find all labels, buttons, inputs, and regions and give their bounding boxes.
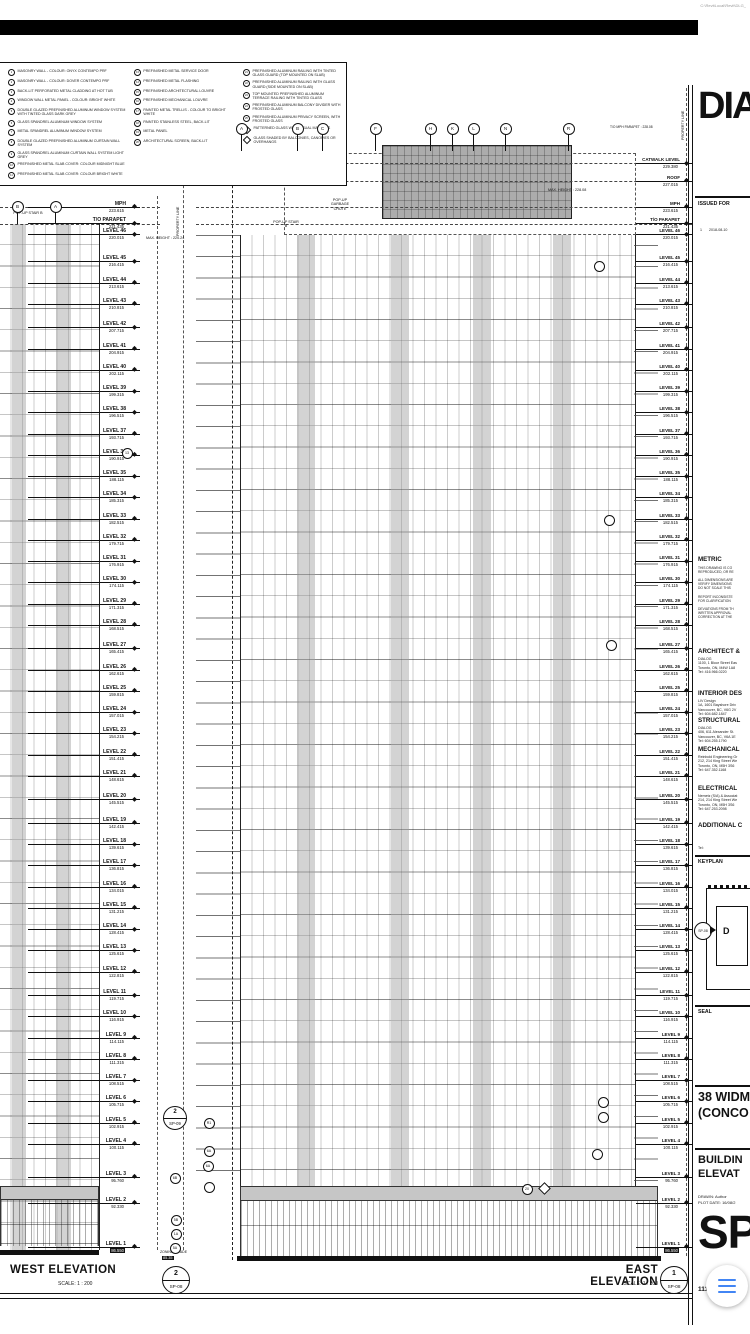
level-marker: LEVEL 25159.815◆ [636, 685, 692, 698]
level-marker: LEVEL 37193.715◆ [636, 428, 692, 441]
legend-item: 13PREFINISHED METAL SERVICE DOOR [134, 69, 236, 76]
popup-garbage-chute-label: POP-UP GARBAGE CHUTE [325, 198, 355, 211]
level-marker: LEVEL 40202.115◆ [636, 364, 692, 377]
metric-notes: THIS DRAWING IS COREPRODUCED, OR REALL D… [698, 566, 750, 619]
elevation-target-icon: ◆ [132, 409, 137, 416]
level-marker: LEVEL 23154.215◆ [28, 727, 140, 740]
keynote-circle-icon: 3 [8, 89, 15, 96]
level-marker: LEVEL 16134.015◆ [28, 881, 140, 894]
level-marker: LEVEL 9114.115◆ [636, 1032, 692, 1045]
elevation-target-icon: ◆ [132, 345, 137, 352]
revision-date: 2018-08-10 [709, 228, 750, 232]
elevation-target-icon: ◆ [132, 947, 137, 954]
elevation-target-icon: ◆ [132, 841, 137, 848]
elevation-target-icon: ◆ [132, 300, 137, 307]
keynote-circle: 6A [203, 1161, 214, 1172]
elevation-target-icon: ◆ [132, 324, 137, 331]
keynote-circle-icon: 5 [8, 108, 15, 115]
sheet-title-line1: BUILDIN [698, 1153, 750, 1168]
elevation-target-icon: ◆ [132, 494, 137, 501]
keyplan-header: KEYPLAN [698, 859, 750, 865]
level-marker: LEVEL 15131.215◆ [28, 902, 140, 915]
level-marker: LEVEL 13125.615◆ [636, 944, 692, 957]
elevation-target-icon: ◆ [132, 709, 137, 716]
level-marker: LEVEL 292.330◆ [28, 1197, 140, 1210]
parapet-datum-line-east [196, 224, 692, 225]
elevation-target-icon: ◆ [132, 558, 137, 565]
legend-item: 22PREFINISHED ALUMINUM RAILING WITH GLAS… [243, 80, 342, 89]
hamburger-icon [718, 1279, 736, 1282]
level-marker: LEVEL 20145.515◆ [28, 793, 140, 806]
level-marker: LEVEL 31176.915◆ [28, 555, 140, 568]
elevation-target-icon: ◆ [132, 1199, 137, 1206]
legend-item: 25PREFINISHED ALUMINUM PRIVACY SCREEN, W… [243, 115, 342, 124]
level-marker: LEVEL 8111.315◆ [636, 1053, 692, 1066]
west-elevation-title: WEST ELEVATION [10, 1264, 116, 1276]
keynote-circle [606, 640, 617, 651]
level-marker: LEVEL 37193.715◆ [28, 428, 140, 441]
elevation-target-icon: ◆ [132, 687, 137, 694]
keynote-circle-icon: 10 [8, 162, 15, 169]
level-marker: LEVEL 36190.915◆ [636, 449, 692, 462]
level-marker: LEVEL 29171.315◆ [28, 598, 140, 611]
level-marker: LEVEL 17136.815◆ [636, 859, 692, 872]
hamburger-icon [718, 1285, 736, 1288]
property-line-east-left [232, 140, 233, 1260]
level-marker: LEVEL 24157.015◆ [636, 706, 692, 719]
level-marker: LEVEL 39199.315◆ [28, 385, 140, 398]
elevation-target-icon: ◆ [132, 772, 137, 779]
keynote-circle: 20 [522, 1184, 533, 1195]
level-marker: LEVEL 11119.715◆ [636, 989, 692, 1002]
legend-item: 20ARCHITECTURAL SCREEN, BACK-LIT [134, 139, 236, 146]
hamburger-icon [718, 1291, 736, 1294]
east-balcony-ticks-left [196, 235, 240, 1186]
level-marker: LEVEL 41204.915◆ [28, 343, 140, 356]
elevation-target-icon: ◆ [132, 515, 137, 522]
elevation-target-icon: ◆ [132, 1034, 137, 1041]
metric-header: METRIC [698, 556, 750, 563]
elevation-target-icon: ◆ [132, 751, 137, 758]
level-marker: LEVEL 292.330◆ [636, 1197, 692, 1210]
level-marker: LEVEL 32179.715◆ [636, 534, 692, 547]
elevation-target-icon: ◆ [132, 258, 137, 265]
level-marker: LEVEL 34185.315◆ [636, 491, 692, 504]
level-marker: CATWALK LEVEL229.380◆ [636, 157, 692, 170]
elevation-target-icon: ◆ [132, 819, 137, 826]
elevation-target-icon: ◆ [132, 1055, 137, 1062]
popup-stair-label-west: POP-UP STAIR B [5, 211, 51, 215]
level-marker: LEVEL 30174.115◆ [28, 576, 140, 589]
elevation-target-icon: ◆ [132, 796, 137, 803]
keynote-circle: 6A [204, 1146, 215, 1157]
keynote-circle-icon: 24 [243, 103, 250, 110]
divider [695, 855, 750, 857]
level-marker: LEVEL 395.760◆ [28, 1171, 140, 1184]
titleblock-border-outer [688, 85, 689, 1325]
elevation-target-icon: ◆ [132, 579, 137, 586]
structural-header: STRUCTURAL [698, 717, 750, 724]
keynote-circle-icon: 8 [8, 139, 15, 146]
grid-bubble: B [292, 123, 304, 135]
level-marker: LEVEL 39199.315◆ [636, 385, 692, 398]
level-marker: LEVEL 6105.715◆ [636, 1095, 692, 1108]
drawing-viewer-page: C:\RevitLocal\Revit\DLG_ 1MASONRY WALL -… [0, 0, 750, 1334]
titleblock: DIA ISSUED FOR 1 2018-08-10 METRIC THIS … [693, 36, 750, 1334]
grid-bubble: C [317, 123, 329, 135]
project-name-line1: 38 WIDM [698, 1090, 750, 1105]
keynote-circle-icon: 22 [243, 80, 250, 87]
level-marker: LEVEL 42207.715◆ [28, 321, 140, 334]
divider [695, 1085, 750, 1087]
keynote-circle [598, 1097, 609, 1108]
east-title-callout: 1 SP-08 [660, 1266, 688, 1294]
popup-stair-label-east: POP-UP STAIR B [272, 220, 300, 229]
grid-bubble: L [468, 123, 480, 135]
elevation-target-icon: ◆ [132, 883, 137, 890]
elevation-target-icon: ◆ [132, 473, 137, 480]
level-marker: LEVEL 8111.315◆ [28, 1053, 140, 1066]
level-marker: LEVEL 19142.415◆ [636, 817, 692, 830]
level-marker: LEVEL 186.550◆ [28, 1241, 140, 1254]
level-marker: LEVEL 26162.615◆ [28, 664, 140, 677]
grid-line-stem [452, 133, 453, 151]
level-marker: LEVEL 25159.815◆ [28, 685, 140, 698]
level-marker: LEVEL 35188.115◆ [28, 470, 140, 483]
keynote-circle-icon: 7 [8, 129, 15, 136]
legend-item: 21PREFINISHED ALUMINUM RAILING WITH TINT… [243, 69, 342, 78]
keynote-circle-icon: 6 [8, 120, 15, 127]
west-title-callout: 2 SP-08 [162, 1266, 190, 1294]
level-marker: LEVEL 30174.115◆ [636, 576, 692, 589]
keynote-circle-icon: 2 [8, 79, 15, 86]
architect-header: ARCHITECT & [698, 648, 750, 655]
plot-date: PLOT DATE: 16/08/2 [698, 1201, 750, 1205]
level-marker: LEVEL 7108.515◆ [28, 1074, 140, 1087]
legend-item: 23TOP MOUNTED PREFINISHED ALUMINUM TERRA… [243, 92, 342, 101]
west-elevation-scale: SCALE: 1 : 200 [58, 1281, 92, 1287]
keynote-circle-icon: 21 [243, 69, 250, 76]
level-marker: LEVEL 12122.815◆ [28, 966, 140, 979]
level-marker: LEVEL 43210.815◆ [636, 298, 692, 311]
level-marker: LEVEL 6105.715◆ [28, 1095, 140, 1108]
grid-line-stem [322, 133, 323, 151]
level-marker: LEVEL 45216.415◆ [636, 255, 692, 268]
level-marker: LEVEL 21148.615◆ [28, 770, 140, 783]
grid-line-stem [473, 133, 474, 151]
level-marker: LEVEL 33182.515◆ [636, 513, 692, 526]
level-marker: ROOF227.015◆ [636, 175, 692, 188]
level-marker: LEVEL 17136.815◆ [28, 859, 140, 872]
elevation-target-icon: ◆ [132, 621, 137, 628]
keynote-circle [604, 515, 615, 526]
grid-line-stem [430, 133, 431, 151]
keyplan-arrow-icon [710, 926, 716, 934]
legend-item: 18PAINTED STAINLESS STEEL, BACK-LIT [134, 120, 236, 127]
file-path-top: C:\RevitLocal\Revit\DLG_ [700, 3, 746, 8]
menu-fab-button[interactable] [706, 1265, 748, 1307]
level-marker: LEVEL 28168.515◆ [28, 619, 140, 632]
project-name-line2: (CONCO [698, 1106, 750, 1121]
level-marker: LEVEL 45216.415◆ [28, 255, 140, 268]
level-marker: LEVEL 18139.615◆ [28, 838, 140, 851]
keynote-circle [594, 261, 605, 272]
level-marker: LEVEL 11119.715◆ [28, 989, 140, 1002]
property-line-label: PROPERTY LINE [681, 92, 685, 140]
elevation-target-icon: ◆ [132, 388, 137, 395]
level-marker: LEVEL 28168.515◆ [636, 619, 692, 632]
elevation-target-icon: ◆ [132, 904, 137, 911]
grid-line-stem [505, 133, 506, 151]
property-line-label: PROPERTY LINE [176, 188, 180, 236]
level-marker: LEVEL 186.550◆ [636, 1241, 692, 1254]
level-marker: LEVEL 22151.415◆ [636, 749, 692, 762]
level-marker: LEVEL 9114.115◆ [28, 1032, 140, 1045]
legend-item: 14PREFINISHED METAL FLASHING [134, 79, 236, 86]
interior-info: LIV Design1A, 1601 Bayshore Driv Vancouv… [698, 699, 750, 716]
elevation-target-icon: ◆ [132, 645, 137, 652]
west-level-markers: MPH223.615◆T/O PARAPET221.435◆LEVEL 4622… [28, 0, 140, 1334]
legend-column-2: 13PREFINISHED METAL SERVICE DOOR14PREFIN… [134, 69, 236, 182]
keynote-circle: 6B [170, 1173, 181, 1184]
level-marker: LEVEL 14128.415◆ [636, 923, 692, 936]
drawn-by: DRAWN: Author [698, 1195, 750, 1199]
elevation-target-icon: ◆ [132, 1098, 137, 1105]
level-marker: LEVEL 21148.615◆ [636, 770, 692, 783]
elevation-target-icon: ◆ [132, 1243, 137, 1250]
legend-item: 15PREFINISHED ARCHITECTURAL LOUVRE [134, 89, 236, 96]
level-marker: LEVEL 44213.615◆ [28, 277, 140, 290]
level-marker: LEVEL 31176.915◆ [636, 555, 692, 568]
keynote-circle-icon: 25 [243, 115, 250, 122]
level-marker: LEVEL 7108.515◆ [636, 1074, 692, 1087]
grid-bubble: K [447, 123, 459, 135]
level-marker: MPH223.615◆ [636, 201, 692, 214]
interior-header: INTERIOR DES [698, 690, 750, 697]
elevation-target-icon: ◆ [132, 451, 137, 458]
level-marker: LEVEL 38196.515◆ [28, 406, 140, 419]
level-marker: LEVEL 43210.815◆ [28, 298, 140, 311]
level-marker: LEVEL 44213.615◆ [636, 277, 692, 290]
divider [695, 1148, 750, 1150]
grid-bubble: A [50, 201, 62, 213]
divider [695, 1005, 750, 1007]
elevation-target-icon: ◆ [132, 220, 137, 227]
max-height-west-label: MAX. HEIGHT : 220.24 [146, 236, 206, 240]
level-marker: LEVEL 34185.315◆ [28, 491, 140, 504]
level-marker: LEVEL 46220.015◆ [636, 228, 692, 241]
keyplan-letter: D [723, 926, 750, 936]
architect-info: DIALOG1100, 1 Bloor Street Eas Toronto, … [698, 657, 750, 674]
grid-line-stem [55, 211, 56, 224]
keynote-circle-icon: 23 [243, 92, 250, 99]
elevation-target-icon: ◆ [132, 926, 137, 933]
level-marker: LEVEL 42207.715◆ [636, 321, 692, 334]
facade-spandrel-strip [297, 235, 315, 1186]
level-marker: LEVEL 4100.115◆ [28, 1138, 140, 1151]
keynote-circle: 5A [170, 1243, 181, 1254]
east-ground-line [237, 1256, 661, 1261]
level-marker: LEVEL 27165.415◆ [28, 642, 140, 655]
keynote-circle [592, 1149, 603, 1160]
level-marker: LEVEL 13125.615◆ [28, 944, 140, 957]
grid-bubble: R [563, 123, 575, 135]
legend-item: GLASS SHADED BY BALCONIES, CANOPIES OR O… [243, 136, 342, 145]
keynote-circle: R1 [204, 1118, 215, 1129]
level-marker: LEVEL 22151.415◆ [28, 749, 140, 762]
elevation-target-icon: ◆ [132, 992, 137, 999]
level-marker: LEVEL 15131.215◆ [636, 902, 692, 915]
dialog-logo: DIA [698, 86, 750, 126]
east-podium-glazing [240, 1201, 658, 1256]
level-marker: LEVEL 20145.515◆ [636, 793, 692, 806]
level-marker: LEVEL 18139.615◆ [636, 838, 692, 851]
level-marker: LEVEL 16134.015◆ [636, 881, 692, 894]
sheet-number: SP [698, 1208, 750, 1256]
facade-spandrel-strip [12, 224, 26, 1250]
level-marker: LEVEL 26162.615◆ [636, 664, 692, 677]
level-marker: LEVEL 5102.915◆ [636, 1117, 692, 1130]
grid-bubble: F [370, 123, 382, 135]
mph-datum-line-east [196, 207, 692, 208]
east-podium-canopy [240, 1186, 658, 1201]
level-marker: LEVEL 38196.515◆ [636, 406, 692, 419]
grid-line-stem [241, 133, 242, 151]
elevation-target-icon: ◆ [132, 968, 137, 975]
keynote-circle: 13 [122, 448, 133, 459]
elevation-target-icon: ◆ [132, 1119, 137, 1126]
legend-item: 19METAL PANEL [134, 129, 236, 136]
issued-for-header: ISSUED FOR [698, 201, 750, 207]
structural-info: DIALOG406, 611 Alexander St. Vancouver, … [698, 726, 750, 743]
mechanical-info: Reinbold Engineering Gr212, 214 King Str… [698, 755, 750, 772]
grid-line-stem [375, 133, 376, 151]
elevation-target-icon: ◆ [132, 862, 137, 869]
facade-spandrel-strip [473, 235, 491, 1186]
elevation-target-icon: ◆ [132, 666, 137, 673]
additional-header: ADDITIONAL C [698, 822, 750, 829]
elevation-target-icon: ◆ [132, 1013, 137, 1020]
level-marker: LEVEL 19142.415◆ [28, 817, 140, 830]
additional-tel: Tel: [698, 846, 750, 850]
elevation-target-icon: ◆ [132, 730, 137, 737]
legend-item: 17PAINTED METAL TRELLIS - COLOUR TO BRIG… [134, 108, 236, 117]
mph-parapet-dim-label: T/O MPH PARAPET : 228.08 [610, 125, 690, 129]
elevation-target-icon: ◆ [132, 600, 137, 607]
level-marker: LEVEL 40202.115◆ [28, 364, 140, 377]
keynote-circle [204, 1182, 215, 1193]
zoning-grade-value: 85.35 [162, 1256, 174, 1260]
elevation-target-icon: ◆ [132, 1077, 137, 1084]
legend-item: 16PREFINISHED MECHANICAL LOUVRE [134, 98, 236, 105]
grid-bubble: A [236, 123, 248, 135]
max-height-east-label: MAX. HEIGHT : 228.08 [548, 188, 610, 192]
elevation-target-icon: ◆ [132, 231, 137, 238]
keynote-circle [598, 1112, 609, 1123]
elevation-target-icon: ◆ [132, 279, 137, 286]
sheet-title-line2: ELEVAT [698, 1167, 750, 1182]
mechanical-header: MECHANICAL [698, 746, 750, 753]
electrical-info: Nemetz (S/A) & Associat214, 214 King Str… [698, 794, 750, 811]
grid-bubble: N [500, 123, 512, 135]
diamond-icon [243, 136, 251, 144]
east-elevation-facade [240, 235, 636, 1186]
level-marker: LEVEL 12122.815◆ [636, 966, 692, 979]
keynote-circle-icon: 1 [8, 69, 15, 76]
elevation-target-icon: ◆ [132, 1140, 137, 1147]
keynote-circle: 1A [171, 1229, 182, 1240]
keynote-circle-icon: 9 [8, 151, 15, 158]
electrical-header: ELECTRICAL [698, 785, 750, 792]
level-marker: LEVEL 32179.715◆ [28, 534, 140, 547]
east-elevation-scale: SCALE: 1 : 200 [588, 1281, 658, 1287]
legend-item: 24PREFINISHED ALUMINUM BALCONY DIVIDER W… [243, 103, 342, 112]
elevation-target-icon: ◆ [132, 430, 137, 437]
seal-header: SEAL [698, 1009, 750, 1015]
elevation-target-icon: ◆ [132, 536, 137, 543]
level-marker: LEVEL 24157.015◆ [28, 706, 140, 719]
east-level-markers: CATWALK LEVEL229.380◆ROOF227.015◆MPH223.… [636, 0, 692, 1334]
keynote-circle-icon: 4 [8, 98, 15, 105]
property-line-west [183, 150, 184, 1250]
facade-spandrel-strip [553, 235, 571, 1186]
level-marker: LEVEL 4100.115◆ [636, 1138, 692, 1151]
level-marker: LEVEL 5102.915◆ [28, 1117, 140, 1130]
level-marker: LEVEL 14128.415◆ [28, 923, 140, 936]
elevation-target-icon: ◆ [132, 1173, 137, 1180]
grid-line-stem [568, 133, 569, 151]
level-marker: LEVEL 41204.915◆ [636, 343, 692, 356]
elevation-target-icon: ◆ [132, 203, 137, 210]
grid-bubble: B [12, 201, 24, 213]
level-marker: LEVEL 10116.915◆ [28, 1010, 140, 1023]
keynote-circle-icon: 11 [8, 172, 15, 179]
level-marker: LEVEL 46220.015◆ [28, 228, 140, 241]
level-marker: LEVEL 29171.315◆ [636, 598, 692, 611]
level-marker: LEVEL 35188.115◆ [636, 470, 692, 483]
grid-line-stem [297, 133, 298, 151]
level-marker: LEVEL 10116.915◆ [636, 1010, 692, 1023]
divider [695, 196, 750, 198]
level-marker: LEVEL 395.760◆ [636, 1171, 692, 1184]
keyplan-core [716, 906, 748, 966]
elevation-target-icon: ◆ [132, 366, 137, 373]
facade-spandrel-strip [391, 235, 409, 1186]
grid-bubble: H [425, 123, 437, 135]
keyplan-balcony-notches [708, 885, 748, 889]
level-marker: LEVEL 23154.215◆ [636, 727, 692, 740]
section-line [157, 196, 158, 1250]
keynote-circle: 5B [171, 1215, 182, 1226]
detail-callout-sp09: 2 SP-09 [163, 1106, 187, 1130]
level-marker: LEVEL 27165.415◆ [636, 642, 692, 655]
level-marker: LEVEL 33182.515◆ [28, 513, 140, 526]
